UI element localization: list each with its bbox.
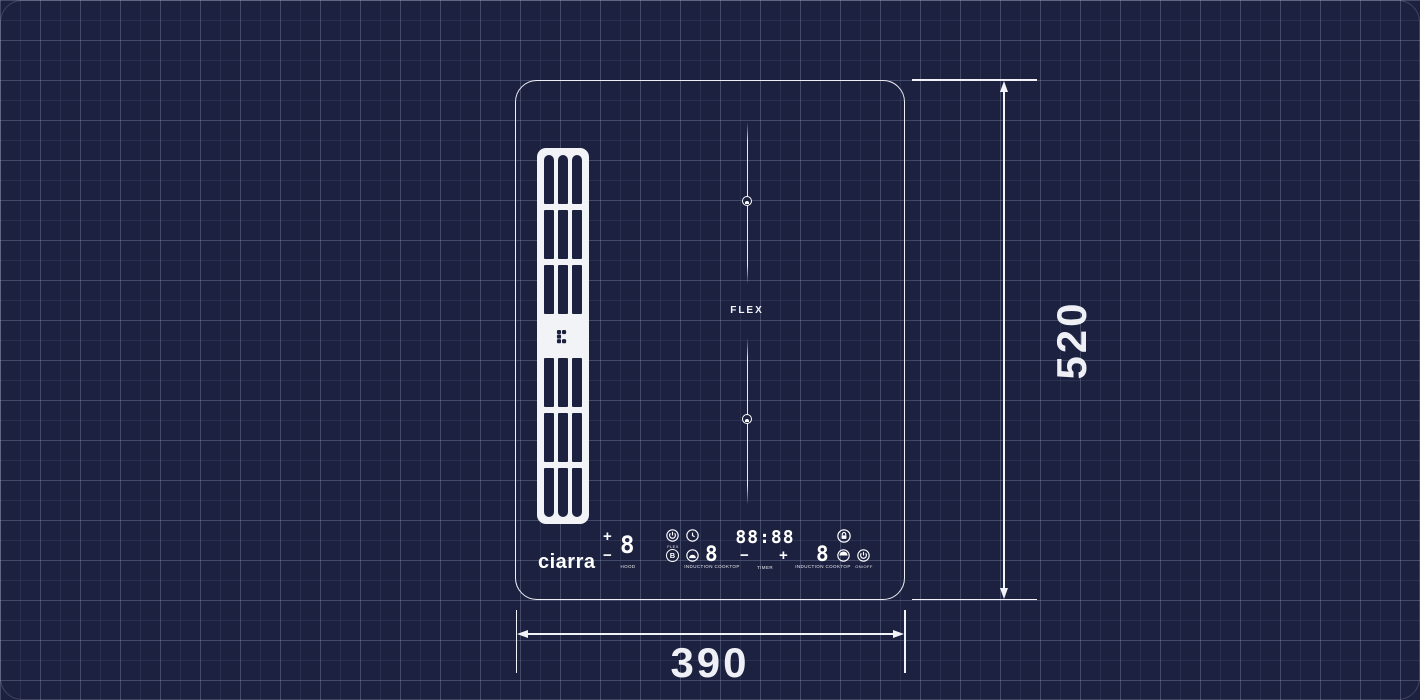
grille-section (544, 358, 582, 407)
arrow-down-icon (1000, 588, 1008, 599)
flex-zone-label: FLEX (717, 305, 777, 316)
timer-display: 88:88 (735, 529, 795, 547)
power-icon (666, 529, 679, 542)
lock-icon (837, 529, 850, 542)
height-extension-line-bottom (912, 599, 1037, 601)
boost-icon: B (666, 549, 679, 562)
hood-label: HOOD (608, 564, 648, 569)
left-zone-label: INDUCTION COOKTOP (682, 564, 742, 569)
blueprint-canvas: { "page": { "bg": "#1c2140", "grid_color… (0, 0, 1420, 700)
grille-section (544, 155, 582, 204)
pause-icon (837, 549, 850, 562)
power-icon (857, 549, 870, 562)
right-zone-label: INDUCTION COOKTOP (793, 564, 853, 569)
arrow-up-icon (1000, 81, 1008, 92)
timer-label: TIMER (745, 565, 785, 570)
grille-section (544, 468, 582, 517)
left-zone-level-display: 8 (705, 544, 718, 565)
timer-minus-button: − (740, 548, 749, 563)
pot-marker-icon (742, 414, 752, 424)
right-power-label: ON/OFF (849, 564, 879, 569)
height-dimension-label: 520 (1047, 290, 1097, 390)
arrow-left-icon (517, 630, 528, 638)
timer-clock-icon (686, 529, 699, 542)
right-zone-level-display: 8 (816, 544, 829, 565)
arrow-right-icon (893, 630, 904, 638)
ciarra-mark-icon (544, 320, 582, 352)
grille-section (544, 265, 582, 314)
hood-plus-button: + (603, 529, 612, 544)
downdraft-grille (537, 148, 589, 524)
timer-plus-button: + (779, 548, 788, 563)
pot-marker-icon (742, 196, 752, 206)
width-dimension-line (521, 633, 900, 635)
grille-section (544, 210, 582, 259)
width-dimension-label: 390 (630, 639, 790, 687)
width-extension-line-left (516, 610, 518, 673)
hood-minus-button: − (603, 548, 612, 563)
left-power-label: FLEX (658, 544, 688, 549)
keep-warm-icon (686, 549, 699, 562)
height-dimension-line (1003, 85, 1005, 595)
height-extension-line-top (912, 79, 1037, 81)
width-extension-line-right (904, 610, 906, 673)
brand-logo: ciarra (538, 551, 596, 574)
grille-section (544, 413, 582, 462)
hood-level-display: 8 (620, 533, 634, 557)
